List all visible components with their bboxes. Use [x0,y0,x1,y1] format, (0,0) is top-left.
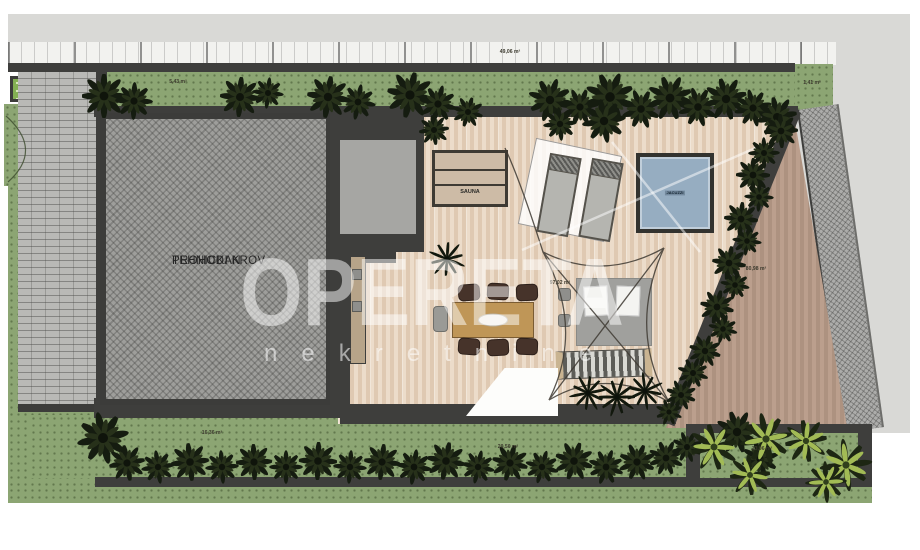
side-table [558,314,571,327]
area-label: 49,06 m² [500,49,520,54]
wall-corridor-left [330,252,350,406]
counter-inset [352,269,362,280]
lounger-pillow [591,160,621,180]
dining-chair [457,337,480,355]
site-plan: TEHNICKI KROV PROHODAN SAUNA JACUZZI [0,0,920,550]
paved-yard-west [18,72,100,412]
wall-south [95,477,872,487]
jacuzzi-pool: JACUZZI [636,153,714,233]
area-label: 13,96 m² [752,446,772,451]
striped-bench [556,348,653,379]
area-label: 97,02 m² [550,280,570,285]
dining-chair [457,283,480,301]
table-centerpiece [478,314,508,327]
area-label: 80,98 m² [746,266,766,271]
side-table [558,288,571,301]
sauna-label: SAUNA [435,189,505,195]
lounger-pillow [549,155,579,175]
wall-north [8,63,795,72]
sauna-bench-line [435,169,505,171]
technical-roof-label-line2: PROHODAN [172,254,241,268]
dining-chair [516,284,539,302]
green-strip-bottom [8,487,872,503]
dining-chair [487,338,510,356]
wall-southeast-top [686,424,872,433]
area-label: 1,41 m² [803,80,821,85]
sauna-bench-line [435,184,505,186]
area-label: 16,36 m² [202,430,222,435]
area-label: 5,43 m² [169,79,187,84]
stair-core-room [340,140,416,234]
road-top [8,14,910,42]
dining-chair [516,338,539,356]
area-label: 20,50 m² [498,444,518,449]
garden-south [30,415,690,478]
jacuzzi-label: JACUZZI [665,191,685,196]
daybed-pillow [615,286,640,317]
daybed-pillow [583,285,609,316]
dining-table [452,302,534,338]
dining-chair [487,282,510,300]
sauna: SAUNA [432,150,508,207]
end-seat [433,306,448,332]
outdoor-counter [350,256,366,364]
sidewalk-top [8,42,836,65]
counter-inset [352,301,362,312]
garden-southeast [700,433,858,478]
